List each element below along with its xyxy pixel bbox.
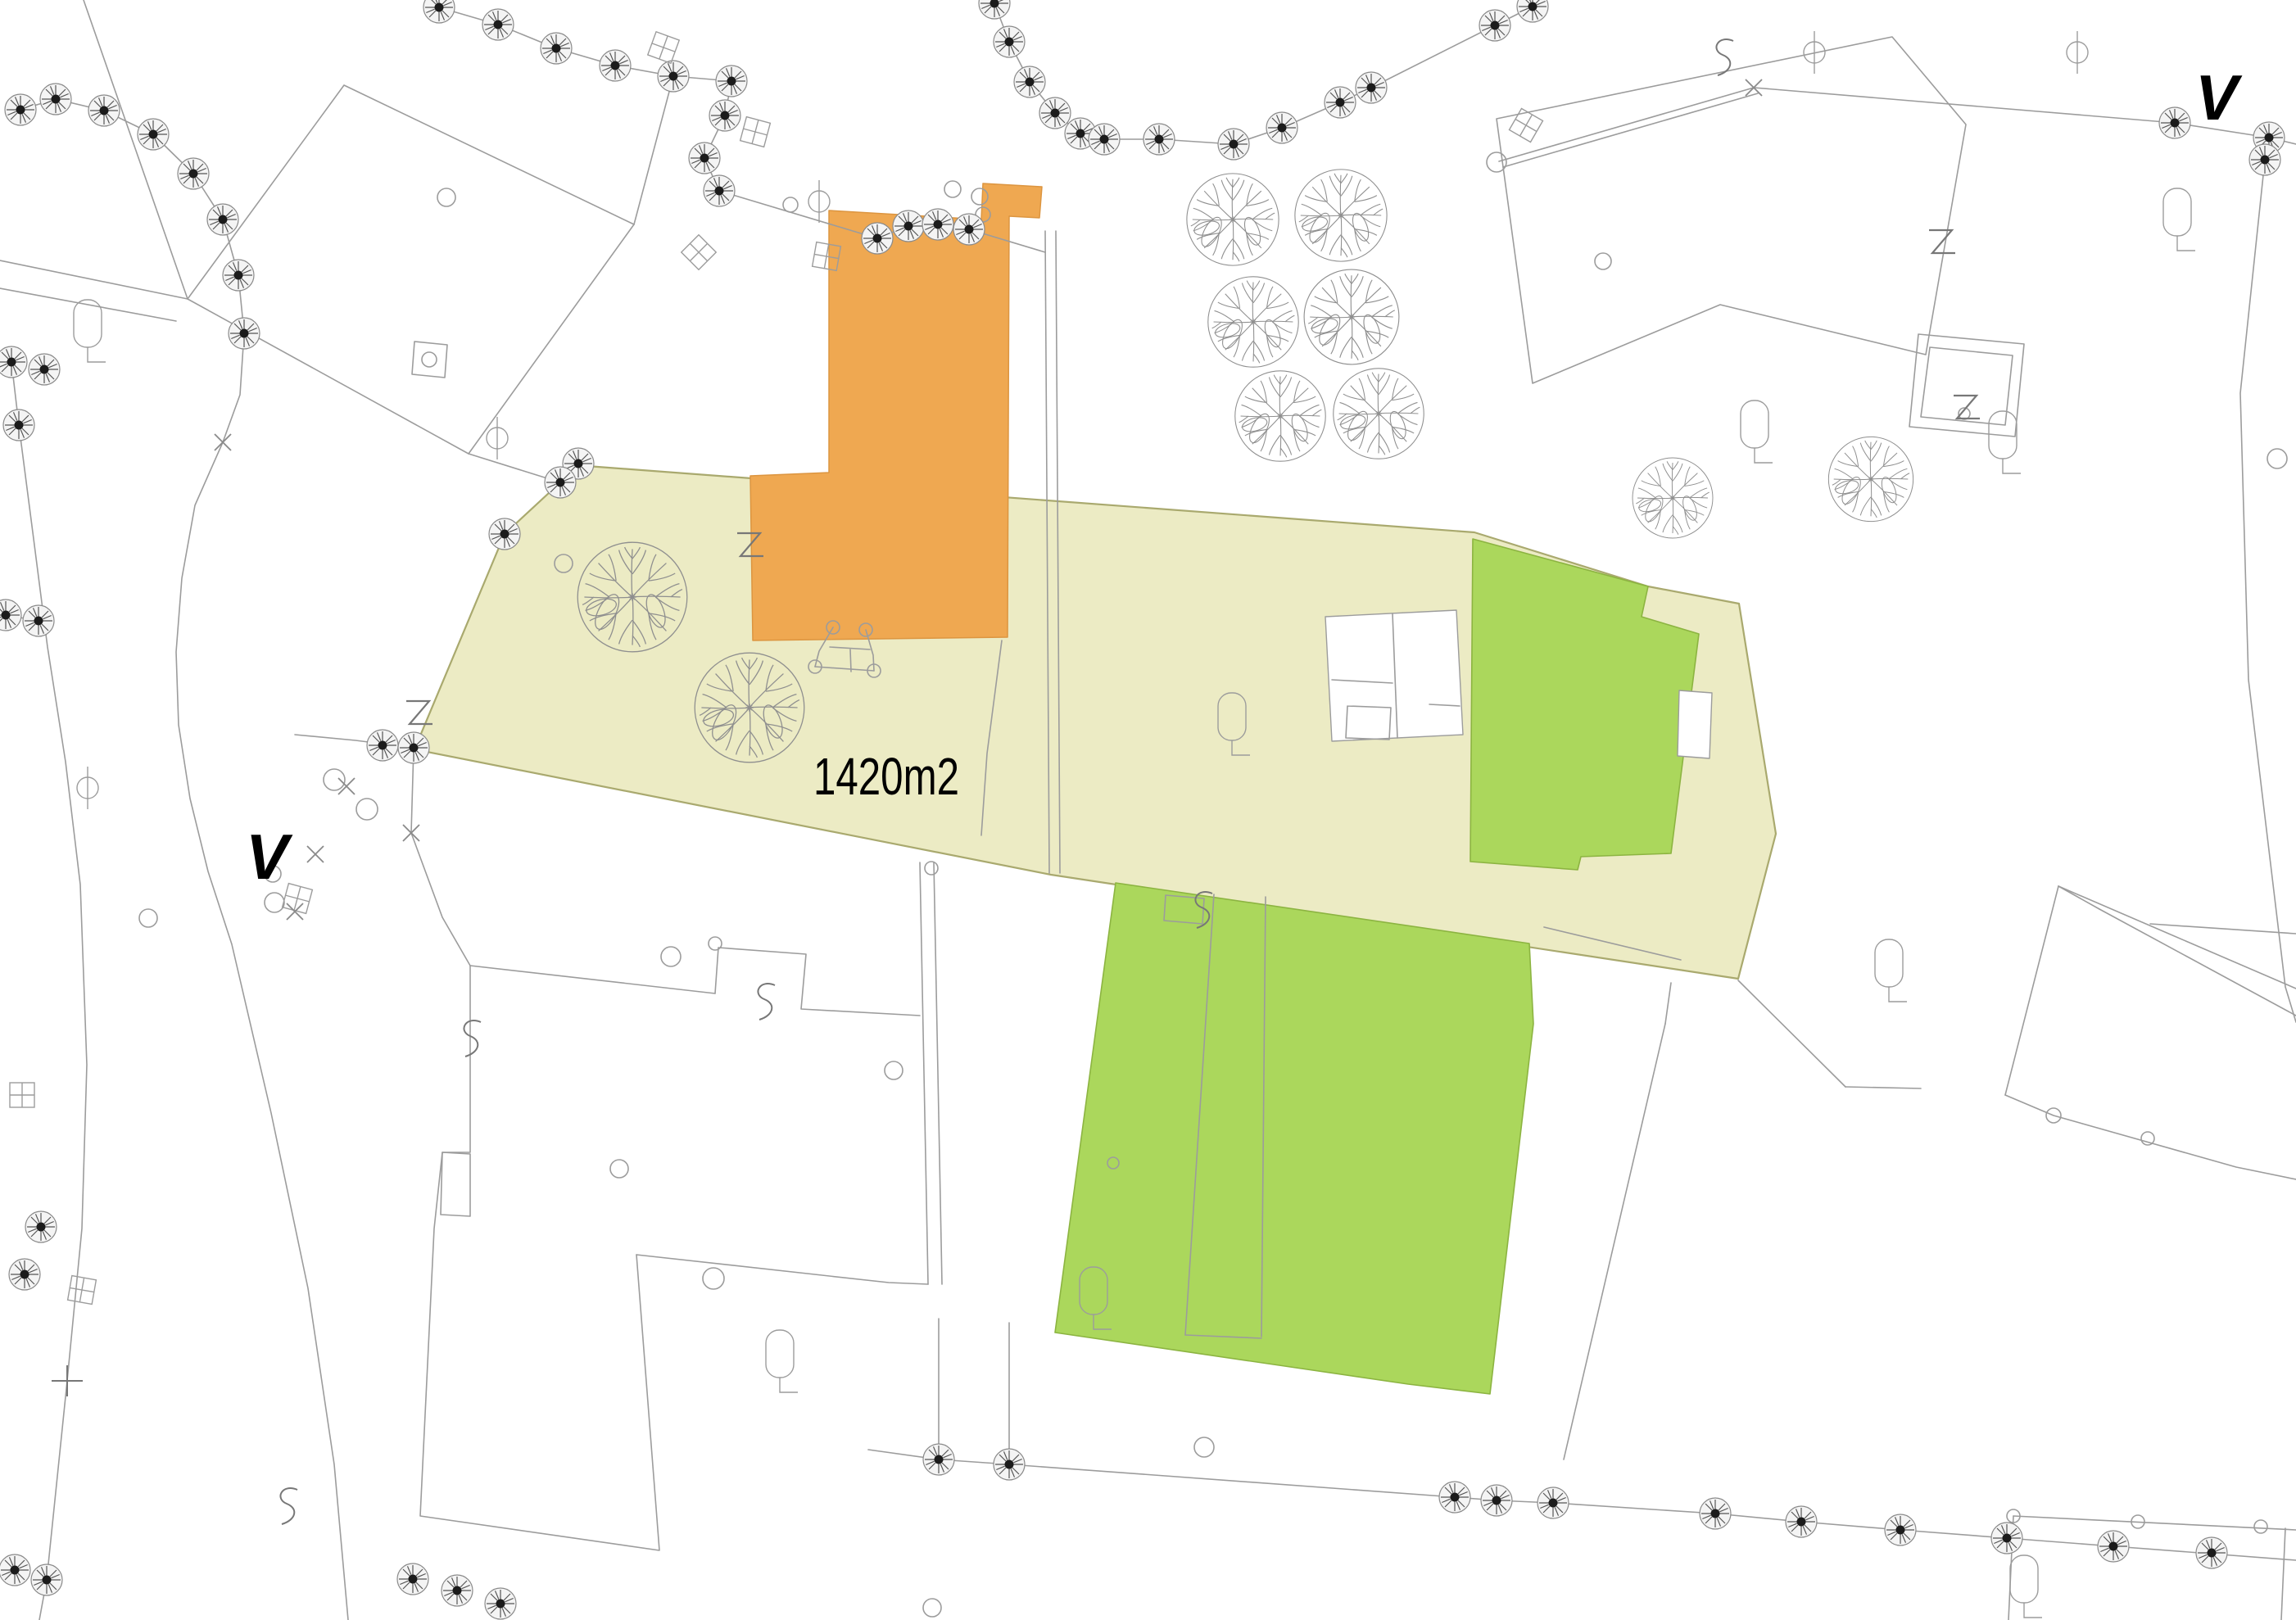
survey-point-icon — [541, 33, 572, 64]
v-label-left: V — [246, 821, 293, 893]
survey-point-icon — [223, 260, 254, 291]
boundary-line — [2058, 886, 2296, 989]
point-circle — [944, 181, 961, 197]
orange-building — [750, 183, 1042, 640]
point-circle — [885, 1061, 903, 1079]
survey-point-icon — [25, 1211, 57, 1242]
survey-point-icon — [923, 1444, 954, 1475]
survey-point-icon — [600, 50, 631, 81]
boundary-line — [441, 1152, 470, 1216]
survey-point-icon — [207, 204, 238, 235]
circle-post-icon — [1804, 31, 1825, 74]
survey-point-icon — [5, 94, 36, 125]
survey-point-icon — [1356, 72, 1387, 103]
survey-point-icon — [1700, 1498, 1731, 1529]
point-circle — [437, 188, 455, 206]
survey-point-icon — [1325, 87, 1356, 118]
boundary-line — [2005, 886, 2058, 1095]
survey-point-icon — [40, 84, 71, 115]
circle-post-icon — [2067, 31, 2088, 74]
boundary-line — [84, 0, 188, 299]
shrub-icon — [1875, 939, 1907, 1002]
cross-mark-icon — [52, 1365, 83, 1396]
boundary-line — [2281, 1528, 2285, 1620]
boundary-line — [2005, 1095, 2296, 1179]
boundary-line — [2099, 909, 2296, 1016]
survey-point-icon — [2098, 1531, 2129, 1562]
shrub-icon — [2163, 188, 2195, 251]
survey-point-icon — [1014, 66, 1045, 97]
z-mark-icon — [1929, 230, 1955, 253]
survey-point-icon — [1991, 1523, 2022, 1554]
boundary-line — [11, 362, 87, 1620]
point-circle — [2141, 1132, 2154, 1145]
tree-icon — [1304, 269, 1399, 364]
survey-point-icon — [1481, 1485, 1512, 1516]
survey-point-icon — [862, 223, 893, 254]
survey-point-icon — [9, 1259, 40, 1290]
survey-point-icon — [1517, 0, 1548, 22]
shrub-icon — [766, 1330, 798, 1392]
room-cutout — [1325, 610, 1463, 741]
survey-point-icon — [1885, 1514, 1916, 1545]
survey-point-icon — [88, 95, 120, 126]
grid-square-icon — [648, 32, 679, 63]
point-circle — [925, 862, 938, 875]
shrub-icon — [74, 300, 106, 362]
boundary-line — [1921, 347, 2013, 425]
survey-point-icon — [2159, 107, 2190, 138]
survey-point-icon — [704, 175, 735, 206]
boundary-line — [188, 85, 634, 454]
point-circle — [1487, 152, 1506, 172]
point-circle — [709, 937, 722, 950]
survey-point-icon — [979, 0, 1010, 19]
point-circle — [2254, 1520, 2267, 1533]
x-mark-icon — [307, 846, 324, 862]
site-plan-map: 1420m2 V V — [0, 0, 2296, 1620]
shrub-icon — [1741, 400, 1773, 463]
colored-regions — [414, 183, 1776, 1394]
boundary-line — [920, 862, 928, 1284]
tree-icon — [1235, 371, 1325, 461]
s-mark-icon — [464, 1020, 481, 1057]
survey-point-icon — [423, 0, 455, 23]
survey-point-icon — [29, 354, 60, 385]
survey-point-icon — [2249, 144, 2280, 175]
point-circle — [783, 197, 798, 212]
x-mark-icon — [338, 778, 355, 794]
survey-point-icon — [485, 1588, 516, 1619]
boundary-line — [1503, 93, 1758, 167]
boundary-line — [850, 649, 851, 672]
shrub-icon — [1989, 411, 2021, 473]
s-mark-icon — [758, 984, 775, 1020]
survey-point-icon — [442, 1575, 473, 1606]
survey-point-icon — [658, 61, 689, 92]
survey-point-icon — [716, 66, 747, 97]
upper-green-building — [1470, 539, 1699, 870]
boundary-line — [439, 7, 1045, 252]
survey-point-icon — [1537, 1487, 1569, 1518]
point-circle — [324, 769, 345, 790]
boundary-line — [420, 966, 659, 1550]
survey-point-icon — [0, 1554, 30, 1586]
boundary-line — [470, 966, 715, 993]
survey-point-icon — [953, 214, 985, 245]
lower-green-area — [1055, 883, 1533, 1394]
survey-point-icon — [138, 119, 169, 150]
point-circle — [610, 1160, 628, 1178]
grid-square-icon — [68, 1276, 97, 1305]
survey-point-icon — [1439, 1482, 1470, 1513]
tree-icon — [1187, 174, 1279, 265]
boundary-line — [1738, 980, 1845, 1087]
point-circle — [923, 1599, 941, 1617]
shrub-icon — [2010, 1555, 2042, 1618]
tree-icon — [1828, 437, 1913, 521]
tree-icon — [1334, 369, 1424, 459]
point-circle — [139, 909, 157, 927]
survey-point-icon — [994, 26, 1025, 57]
survey-point-icon — [994, 1449, 1025, 1480]
x-mark-icon — [215, 434, 231, 450]
boundary-line — [634, 76, 673, 224]
survey-point-icon — [489, 518, 520, 550]
survey-point-icon — [0, 600, 21, 631]
boundary-line — [1665, 983, 1671, 1024]
survey-point-icon — [709, 100, 740, 131]
survey-point-icon — [397, 1563, 428, 1595]
boundary-line — [2150, 924, 2296, 934]
survey-point-icon — [23, 605, 54, 636]
point-circle — [2267, 449, 2287, 468]
survey-point-icon — [178, 158, 209, 189]
survey-point-icon — [398, 732, 429, 763]
boundary-line — [412, 342, 447, 378]
survey-point-icon — [893, 210, 924, 242]
boundary-line — [1497, 37, 1966, 383]
survey-point-icon — [229, 318, 260, 349]
survey-point-icon — [31, 1564, 62, 1595]
boundary-line — [20, 99, 348, 1620]
tree-icon — [1208, 277, 1298, 367]
survey-point-icon — [1479, 10, 1510, 41]
grid-square-icon — [740, 117, 771, 147]
point-circle — [1194, 1437, 1214, 1457]
survey-point-icon — [1218, 129, 1249, 160]
point-circle — [356, 799, 378, 820]
survey-point-icon — [1266, 112, 1297, 143]
point-circle — [422, 352, 437, 367]
survey-point-icon — [3, 410, 34, 441]
survey-point-icon — [1039, 97, 1071, 129]
parcel-area-label: 1420m2 — [813, 747, 959, 806]
boundary-line — [2058, 886, 2099, 909]
point-circle — [265, 893, 284, 912]
boundary-line — [411, 748, 470, 966]
survey-point-icon — [545, 467, 576, 498]
survey-point-icon — [1143, 124, 1175, 155]
survey-point-icon — [922, 209, 953, 240]
grid-square-icon — [10, 1083, 34, 1107]
circle-post-icon — [77, 767, 98, 809]
survey-point-icon — [1786, 1506, 1817, 1537]
boundary-line — [715, 948, 920, 1016]
survey-point-icon — [1089, 124, 1120, 155]
boundary-line — [1564, 1024, 1665, 1459]
boundary-line — [0, 288, 176, 321]
grid-square-icon — [682, 235, 716, 269]
boundary-line — [868, 1450, 2296, 1560]
boundary-line — [636, 1255, 928, 1284]
s-mark-icon — [280, 1488, 297, 1524]
boundary-line — [934, 862, 942, 1284]
boundary-line — [1845, 1087, 1921, 1088]
tree-icon — [1295, 170, 1387, 261]
green-building-notch — [1678, 690, 1712, 758]
point-circle — [661, 947, 681, 966]
survey-point-icon — [367, 730, 398, 761]
point-circle — [703, 1268, 724, 1289]
point-circle — [1595, 253, 1611, 269]
tree-icon — [1633, 458, 1713, 538]
boundary-line — [2240, 160, 2296, 1022]
v-label-right: V — [2195, 61, 2243, 133]
survey-point-icon — [2196, 1537, 2227, 1568]
survey-point-icon — [0, 346, 27, 378]
boundary-line — [2013, 1516, 2296, 1530]
grid-square-icon — [1510, 109, 1543, 143]
survey-point-icon — [689, 143, 720, 174]
boundary-line — [1499, 88, 1754, 161]
z-mark-icon — [1954, 396, 1980, 419]
circle-post-icon — [808, 180, 830, 223]
survey-point-icon — [482, 9, 514, 40]
